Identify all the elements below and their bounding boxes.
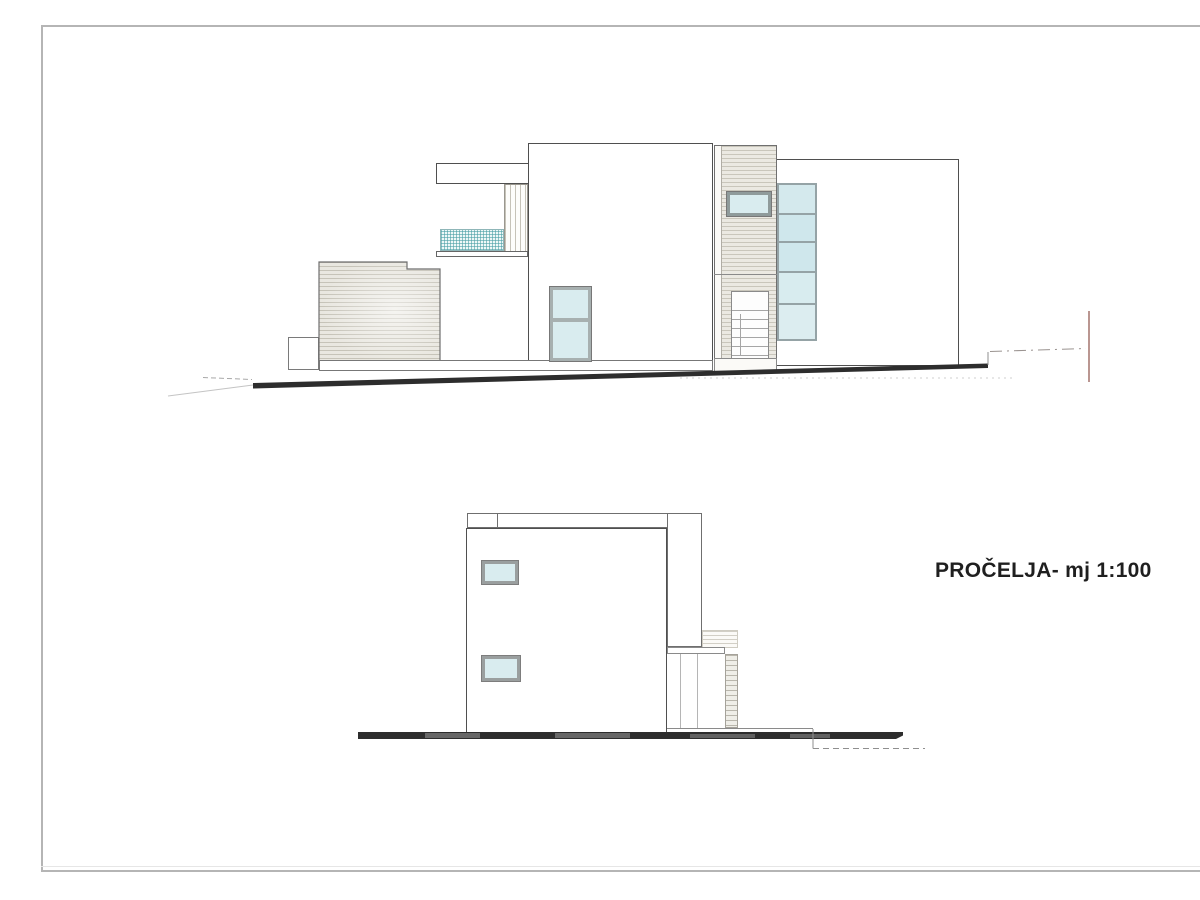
vertical-slat-screen <box>504 184 528 252</box>
porch-post <box>680 654 681 728</box>
entrance-door <box>731 291 769 359</box>
stairwell-glazing <box>777 183 817 341</box>
roof-canopy-slab <box>436 163 529 184</box>
balcony-mesh-railing <box>440 229 504 251</box>
window-mid-rail <box>553 318 588 322</box>
glass-pane <box>779 213 815 241</box>
facade-window-upper <box>482 561 518 584</box>
main-facade-wall <box>466 528 667 735</box>
plinth-strip <box>319 360 713 371</box>
porch-roof-slab <box>667 647 725 654</box>
glass-pane <box>779 241 815 271</box>
rear-volume-wall <box>667 513 702 647</box>
stair-tower-window <box>727 192 771 216</box>
entrance-door-mullion <box>740 314 741 356</box>
lower-elevation-view <box>0 450 1200 900</box>
facade-window-lower <box>482 656 520 681</box>
center-tower-window <box>550 287 591 361</box>
stair-tower-corner-trim <box>715 146 722 370</box>
upper-elevation-view <box>0 0 1200 450</box>
architectural-drawing-page: PROČELJA- mj 1:100 <box>0 0 1200 900</box>
watermark-artifact <box>315 250 475 370</box>
terrace-edge-line <box>667 728 813 729</box>
glass-pane <box>779 271 815 303</box>
stair-tower-plinth <box>714 358 777 371</box>
porch-roof-cladding <box>702 630 738 648</box>
parapet-slab-divider <box>497 513 498 528</box>
exterior-stair-hatch <box>725 654 738 728</box>
glass-pane <box>779 185 815 213</box>
entrance-steps-lines <box>732 310 768 356</box>
stair-tower-floor-line <box>714 274 777 275</box>
porch-post <box>697 654 698 728</box>
glass-pane <box>779 303 815 339</box>
left-annex-box <box>288 337 319 370</box>
drawing-title: PROČELJA- mj 1:100 <box>935 559 1152 583</box>
